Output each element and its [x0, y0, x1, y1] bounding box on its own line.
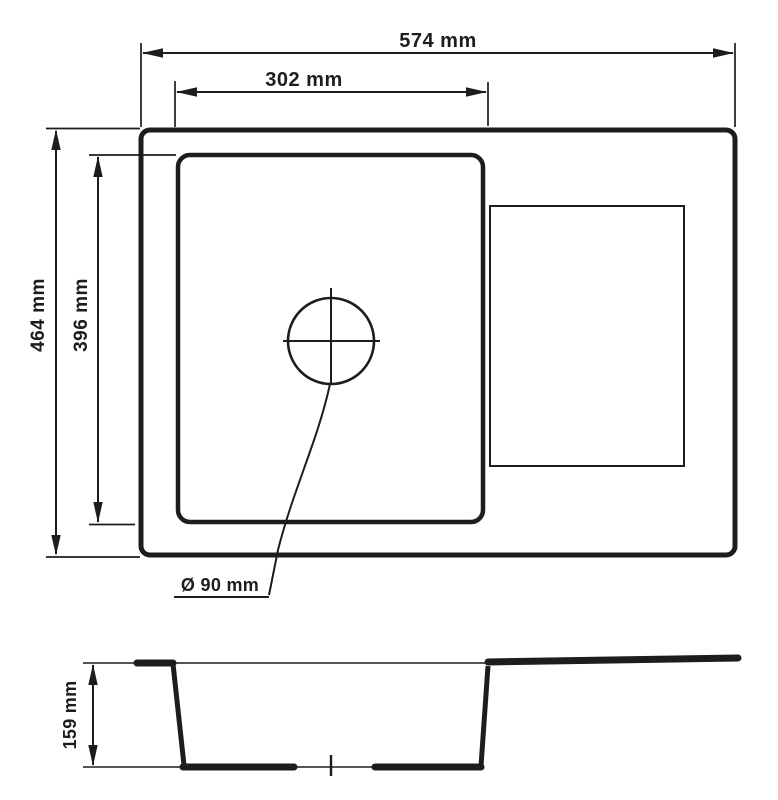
sink-outer-outline	[141, 130, 735, 555]
section-left-bowl-wall	[173, 664, 184, 765]
arrowhead-left	[176, 87, 197, 97]
arrowhead-right	[466, 87, 487, 97]
dimension-label-159: 159 mm	[60, 681, 80, 750]
dimension-label-drain: Ø 90 mm	[181, 575, 259, 595]
technical-drawing-page: 574 mm 302 mm 464 mm	[0, 0, 778, 800]
arrowhead-top	[93, 156, 102, 177]
section-view	[83, 658, 738, 776]
dimension-bowl-depth: 396 mm	[71, 155, 176, 525]
top-view	[141, 130, 735, 597]
dimension-label-574: 574 mm	[399, 30, 477, 52]
dimension-label-464: 464 mm	[28, 278, 49, 352]
dimension-bowl-height: 159 mm	[60, 664, 98, 766]
drain-leader-line	[269, 384, 330, 595]
arrowhead-bottom	[88, 745, 97, 766]
dimensions-section-view: 159 mm	[60, 664, 98, 766]
dimension-bowl-width: 302 mm	[175, 69, 488, 127]
arrowhead-top	[51, 130, 60, 151]
arrowhead-bottom	[51, 535, 60, 556]
drainboard-outline	[490, 206, 684, 466]
arrowhead-right	[713, 48, 734, 58]
arrowhead-left	[142, 48, 163, 58]
section-right-bowl-wall	[481, 666, 488, 766]
dimension-label-396: 396 mm	[71, 278, 92, 352]
arrowhead-bottom	[93, 502, 102, 523]
technical-drawing-canvas: 574 mm 302 mm 464 mm	[0, 0, 778, 800]
arrowhead-top	[88, 664, 97, 685]
dimension-label-302: 302 mm	[265, 69, 343, 91]
dimension-overall-width: 574 mm	[141, 30, 735, 127]
dimensions-top-view: 574 mm 302 mm 464 mm	[28, 30, 735, 595]
section-drainboard-surface	[488, 658, 738, 662]
